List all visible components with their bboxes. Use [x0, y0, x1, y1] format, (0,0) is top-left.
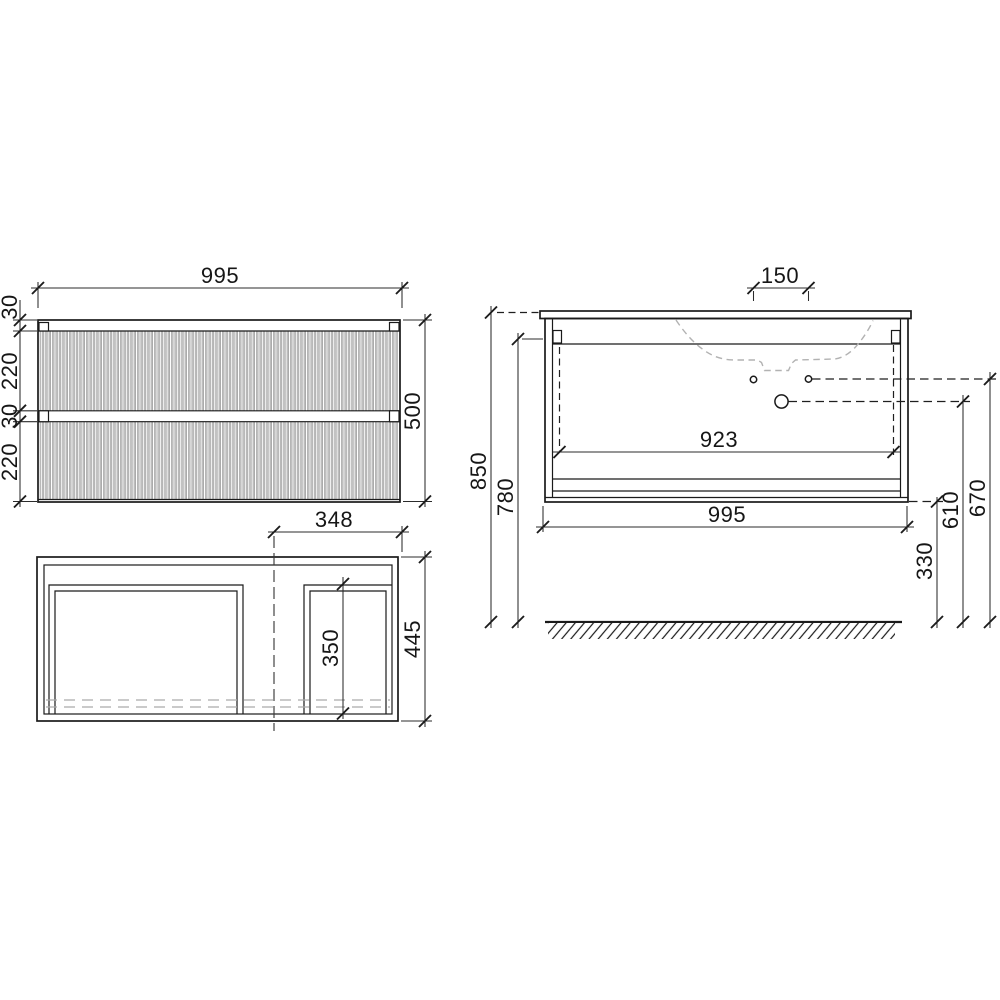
top-rail-end-block-left: [39, 323, 49, 332]
drain-hole: [775, 395, 788, 408]
vanity-technical-drawing: 995 30 220 30 220 500 348 445: [0, 0, 1000, 1000]
drawer-lower-fluted-front: [40, 422, 399, 500]
worktop: [540, 311, 911, 319]
cabinet-side-inner-walls: [545, 319, 908, 498]
basin-hidden-outline: [676, 320, 873, 371]
dim-label-front-width: 995: [201, 263, 239, 288]
dim-label-top-rail: 30: [0, 294, 22, 319]
dim-label-drawer-lower: 220: [0, 443, 22, 481]
faucet-hole-left: [750, 376, 756, 382]
faucet-spacing-extensions: [754, 291, 809, 301]
cabinet-side-outline: [545, 319, 908, 503]
dim-label-interior-width: 923: [700, 427, 738, 452]
plan-hidden-edges: [46, 700, 390, 707]
plan-view: 348 445 350: [37, 507, 432, 731]
top-rail-end-block-right: [390, 323, 400, 332]
front-view: 995 30 220 30 220 500: [0, 263, 432, 508]
side-view: 150 923 995 850 780 330 610 670: [466, 263, 997, 639]
mounting-bracket-right: [892, 331, 901, 344]
dim-label-plan-depth: 445: [400, 620, 425, 658]
floor-hatching: [548, 623, 895, 639]
dim-label-drawer-upper: 220: [0, 352, 22, 390]
dim-label-plan-drawer-depth: 350: [318, 629, 343, 667]
dim-label-faucet-spacing: 150: [761, 263, 799, 288]
mid-rail-end-block-right: [390, 411, 400, 422]
dim-label-drain-height: 610: [938, 491, 963, 529]
cabinet-plan-outline: [37, 557, 398, 721]
dim-label-mid-rail: 30: [0, 403, 22, 428]
drawer-box-left: [49, 585, 243, 714]
dim-label-underside-height: 780: [493, 478, 518, 516]
dim-label-plan-offset: 348: [315, 507, 353, 532]
mounting-bracket-left: [553, 331, 562, 344]
dim-label-clearance: 330: [912, 542, 937, 580]
dim-label-faucet-height: 670: [965, 479, 990, 517]
drawer-upper-fluted-front: [40, 331, 399, 411]
mid-rail-end-block-left: [39, 411, 49, 422]
dim-label-worktop-height: 850: [466, 452, 491, 490]
dim-label-front-height: 500: [400, 392, 425, 430]
drawing-canvas: 995 30 220 30 220 500 348 445: [0, 0, 1000, 1000]
faucet-hole-right: [805, 376, 811, 382]
dim-label-side-width: 995: [708, 502, 746, 527]
